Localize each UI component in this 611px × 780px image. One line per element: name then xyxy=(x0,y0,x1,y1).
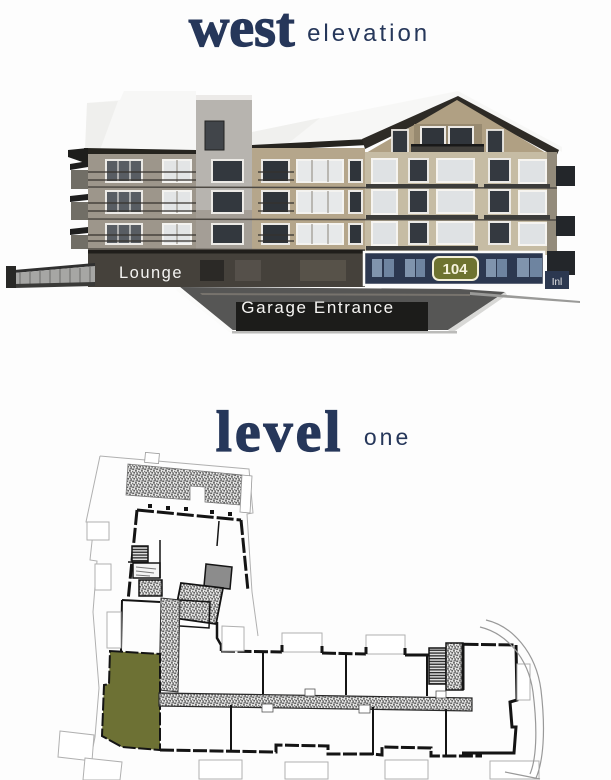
svg-text:Lounge: Lounge xyxy=(119,264,183,282)
svg-text:Inl: Inl xyxy=(552,277,563,288)
svg-text:Garage Entrance: Garage Entrance xyxy=(241,298,394,317)
svg-text:104: 104 xyxy=(442,261,468,278)
